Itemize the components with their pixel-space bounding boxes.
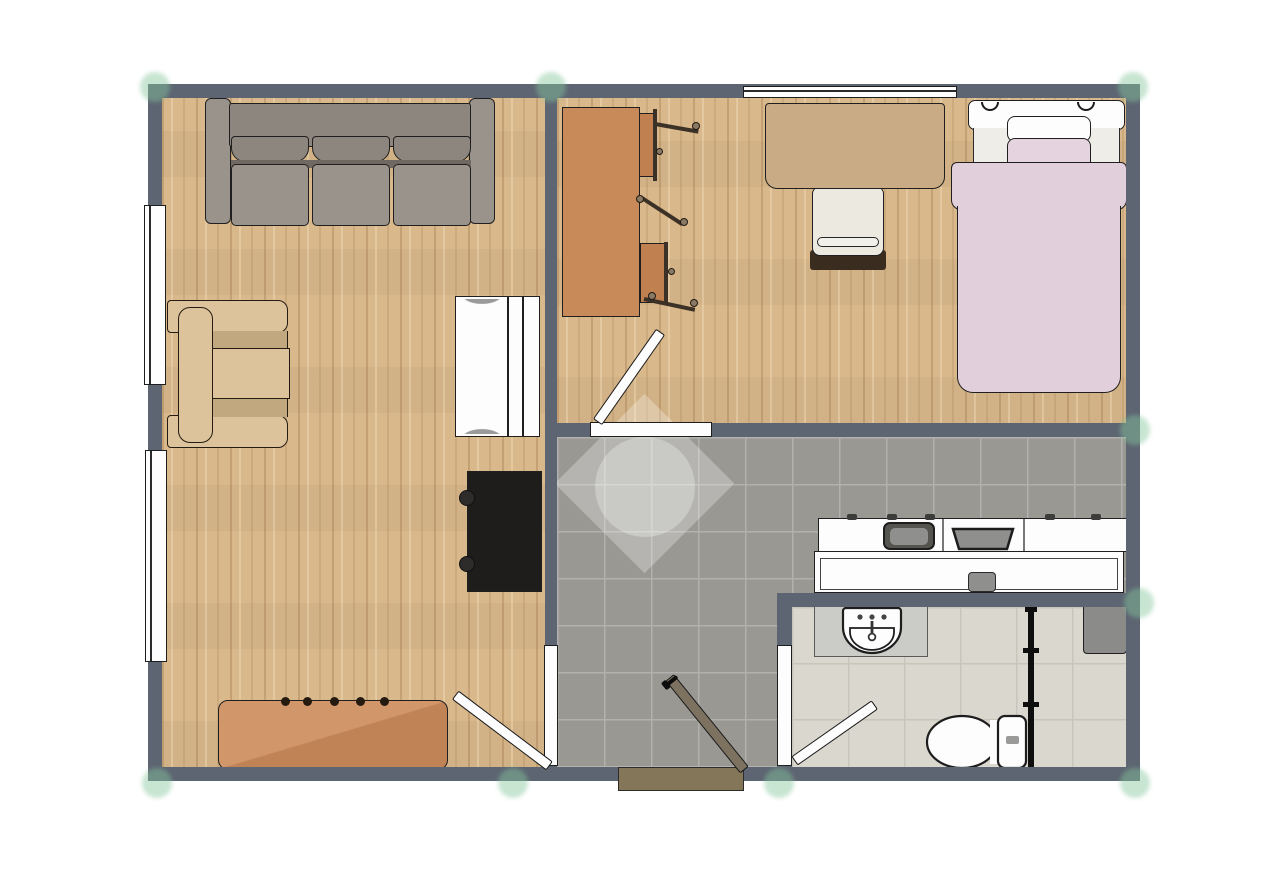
armchair-shadow-bottom [209,397,288,417]
armchair-seat [209,348,290,399]
chair-knob [668,268,675,275]
sofa-seat-cushion [312,164,390,226]
tv-knob [459,556,475,572]
cabinet-shade-top [458,299,506,306]
wall-bathroom-top [777,593,1140,607]
vanity-counter[interactable] [814,604,928,657]
bathroom-cabinet-box[interactable] [1083,604,1127,654]
door-frame-bedroom [590,422,712,437]
entrance-threshold [618,767,744,791]
kitchen-counter[interactable] [818,518,1128,552]
counter-seam [1023,519,1025,551]
counter-handle [925,514,935,520]
door-frame-living [544,645,558,766]
cabinet-divider [522,297,524,436]
cooktop [951,527,1015,551]
toilet[interactable] [922,710,1032,772]
desk-chair[interactable] [812,186,884,256]
shower-screen[interactable] [1028,606,1034,772]
cabinet-divider [507,297,509,436]
sofa-back-cushion [393,136,471,162]
kitchen-sink [883,522,935,550]
door-frame-bathroom [777,645,792,766]
wall-node[interactable] [142,768,172,798]
desk-chair-cushion-line [817,237,879,247]
stool[interactable] [968,572,996,592]
armchair[interactable] [167,300,294,448]
counter-handle [1091,514,1101,520]
chair-back-bar [653,109,657,181]
chair-foot [690,299,698,307]
white-cabinet[interactable] [455,296,540,437]
chair-foot [648,292,656,300]
sofa-armrest-right [469,98,495,224]
counter-handle [847,514,857,520]
sideboard-knob [303,697,312,706]
sofa-back-cushion [231,136,309,162]
cabinet-shade-bottom [458,427,506,434]
chair-knob [656,148,663,155]
shower-screen-hinge [1023,648,1039,653]
sideboard-knob [281,697,290,706]
shower-screen-hinge [1023,702,1039,707]
bed-blanket-fold [951,162,1127,210]
chair-foot [680,218,688,226]
counter-seam [942,519,944,551]
desk[interactable] [765,103,945,189]
wall-node[interactable] [140,72,170,102]
wall-top [148,84,1140,98]
single-bed[interactable] [951,98,1127,393]
sofa-back-cushion [312,136,390,162]
wall-node[interactable] [1124,588,1154,618]
tv-knob [459,490,475,506]
armchair-back-cushion [178,307,213,443]
wall-node[interactable] [1120,768,1150,798]
window-living-1[interactable] [144,205,166,385]
counter-handle [1045,514,1055,520]
window-living-2[interactable] [145,450,167,662]
sofa-seat-cushion [231,164,309,226]
chair-foot [636,195,644,203]
wall-node[interactable] [764,768,794,798]
wall-node[interactable] [1118,72,1148,102]
wall-left [148,84,162,781]
wall-node[interactable] [1120,415,1150,445]
sofa-armrest-left [205,98,231,224]
window-bedroom[interactable] [743,86,957,98]
sofa[interactable] [205,98,495,228]
sideboard-knob [330,697,339,706]
floor-plan-canvas [0,0,1280,881]
tv[interactable] [467,471,542,592]
sofa-seat-cushion [393,164,471,226]
work-table[interactable] [562,107,640,317]
wall-node[interactable] [498,768,528,798]
kitchen-sink-basin [890,528,928,545]
sideboard-knob [380,697,389,706]
sideboard-knob [356,697,365,706]
bed-blanket [957,206,1121,393]
wall-node[interactable] [536,72,566,102]
chair-foot [692,122,700,130]
bathroom-sink [840,606,904,656]
sideboard-table[interactable] [218,700,448,770]
counter-handle [887,514,897,520]
